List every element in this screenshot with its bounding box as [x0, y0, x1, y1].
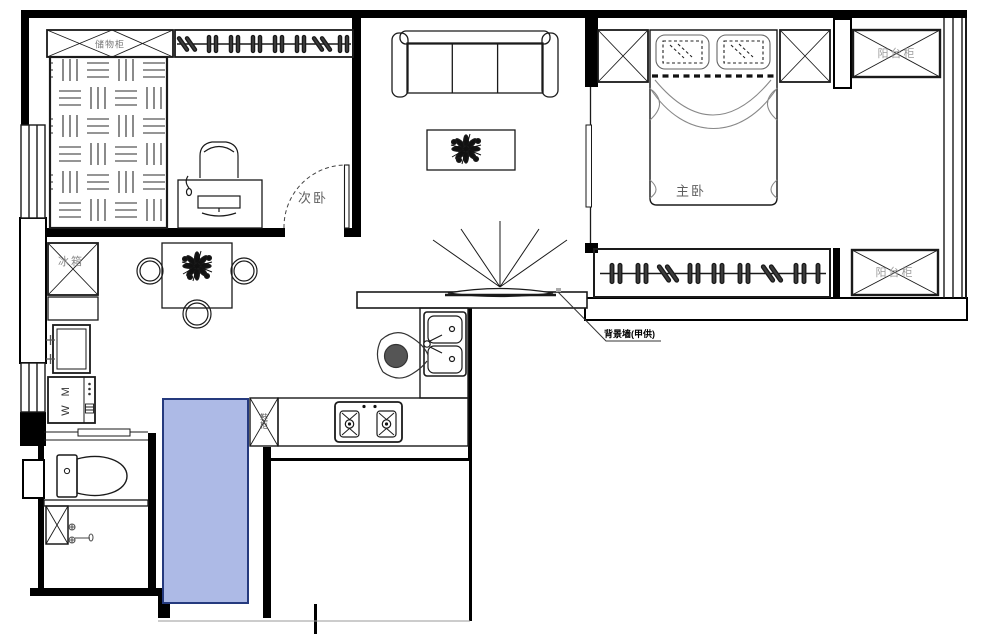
floor-plan-drawing [0, 0, 996, 634]
storage-cabinet [47, 30, 173, 57]
washing-machine [48, 377, 95, 423]
shower-fixture-icon [69, 524, 93, 543]
floor-plan: 储物柜 次卧 主卧 阳台柜 阳台柜 冰箱 鞋柜 W M 背景墙(甲供) [0, 0, 996, 634]
tv [433, 221, 567, 297]
computer-monitor [186, 176, 240, 216]
bathroom-divider [44, 500, 148, 506]
right-window-glazing [944, 18, 962, 298]
master-wardrobe [594, 249, 830, 297]
balcony-cabinet-top [853, 30, 940, 77]
cooktop [335, 402, 402, 442]
shoe-cabinet [250, 398, 278, 446]
faucet-handles [430, 335, 442, 353]
balcony-cabinet-side [852, 250, 938, 295]
door-secondary-bedroom [284, 165, 349, 228]
pillows [656, 35, 770, 69]
shower [46, 506, 93, 544]
burner-right [377, 411, 396, 437]
bathroom-sliding-door [44, 429, 148, 440]
toilet [57, 455, 127, 497]
burner-left [340, 411, 359, 437]
sliding-door-master [586, 87, 592, 243]
fridge [48, 243, 98, 320]
desk-chair [200, 142, 238, 178]
plant-living [451, 134, 481, 164]
tv-wall-annotation: 背景墙(甲供) [604, 327, 655, 340]
kitchen-sink [424, 312, 466, 376]
entry-highlight-region [162, 398, 249, 604]
tatami-bed [50, 57, 167, 228]
blanket-folds [650, 80, 777, 198]
mouse-icon [187, 189, 192, 196]
plant-dining [182, 251, 212, 281]
annotation-marker [556, 288, 561, 292]
nightstand-cabinet-right [780, 30, 830, 82]
kitchen-counter [278, 308, 468, 446]
desk [178, 180, 262, 228]
sofa [392, 31, 558, 97]
nightstand-cabinet-left [598, 30, 648, 82]
master-bed [650, 30, 777, 205]
washbasin [46, 325, 90, 373]
fridge-counter [48, 297, 98, 320]
